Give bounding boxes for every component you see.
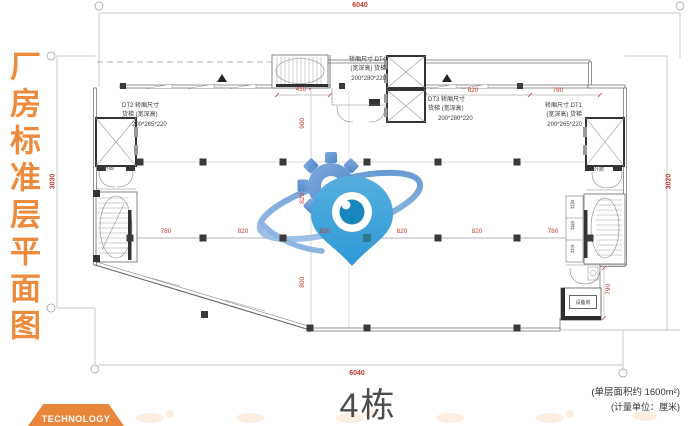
dim-top-total: 6040 xyxy=(343,2,377,9)
dim-left-total: 3030 xyxy=(50,165,57,199)
dim-top-sub: 410 xyxy=(284,87,318,94)
elevator-lobby-doors xyxy=(332,88,387,122)
dim-right-total: 3020 xyxy=(666,165,673,199)
dim-depth: 900 xyxy=(300,106,307,140)
elevator-note-dt4: 轿厢尺寸 DT4 (宽深高) 货梯 200*280*220 xyxy=(330,56,386,84)
column-center xyxy=(363,234,371,242)
banner-label: TECHNOLOGY xyxy=(42,414,111,424)
room-label-corridor: 外廊 xyxy=(594,168,604,173)
building-label: 4栋 xyxy=(308,378,428,426)
dim-depth: 820 xyxy=(300,181,307,215)
page-title: 厂房标准层平面图 xyxy=(7,50,38,360)
elevator-shaft-dt3 xyxy=(369,90,425,122)
corridor-right xyxy=(586,172,624,190)
elevator-note-dt1: 轿厢尺寸 DT1 (宽深高) 货梯 200*265*220 xyxy=(522,102,582,130)
dim-depth: 800 xyxy=(300,265,307,299)
stair-core-left xyxy=(93,190,137,262)
dim-bay: 780 xyxy=(149,229,183,236)
dim-bay: 780 xyxy=(536,229,570,236)
dim-bottom-total: 6040 xyxy=(340,370,374,377)
entrance-marker-icon xyxy=(442,74,452,82)
elevator-shaft-dt1 xyxy=(583,118,624,171)
dim-right-sub: 790 xyxy=(606,272,613,306)
dim-bay: 820 xyxy=(460,229,494,236)
room-label-corridor: 外廊 xyxy=(104,167,114,172)
room-label-equipment: 设备房 xyxy=(569,295,597,309)
dim-bay: 820 xyxy=(226,229,260,236)
room-label-shaft: 电井 xyxy=(570,221,575,237)
dim-bay: 820 xyxy=(308,229,342,236)
dim-top-sub: 780 xyxy=(541,88,575,95)
area-note: (单层面积约 1600m²) xyxy=(591,384,680,398)
technology-banner: TECHNOLOGY xyxy=(28,404,124,426)
corridor-left xyxy=(96,171,136,189)
elevator-note-dt2: DT2 轿厢尺寸 货梯 (宽深高) 200*265*220 xyxy=(122,102,184,130)
entrance-marker-icon xyxy=(217,74,227,82)
logo-watermark xyxy=(253,152,426,266)
dim-top-sub: 620 xyxy=(456,88,490,95)
dim-bay: 820 xyxy=(385,229,419,236)
restroom-area xyxy=(566,265,625,284)
elevator-shaft-dt4 xyxy=(384,56,425,88)
floorplan-page: 厂房标准层平面图 TECHNOLOGY 4栋 (单层面积约 1600m²) (计… xyxy=(0,0,690,426)
room-label-shaft: 风井 xyxy=(570,200,575,216)
unit-note: (计量单位：厘米) xyxy=(611,400,680,413)
room-label-shaft: 水井 xyxy=(570,244,575,260)
stair-core-top xyxy=(272,55,330,88)
elevator-note-dt3: DT3 轿厢尺寸 货梯 (宽深高) 200*280*220 xyxy=(428,96,490,124)
